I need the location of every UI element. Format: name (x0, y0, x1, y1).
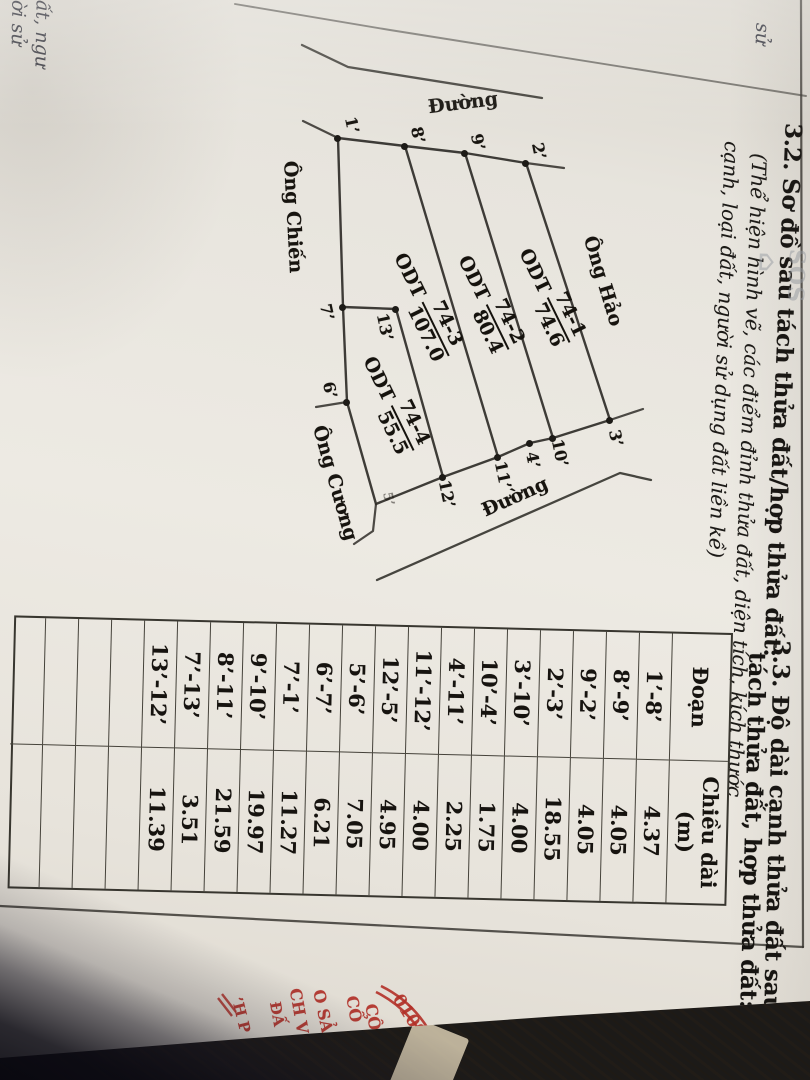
length-cell: 3.51 (172, 748, 207, 891)
vertex-label: 3’ (605, 428, 627, 448)
segment-cell: 8’-9’ (604, 632, 639, 760)
stamp-arc-lines (0, 0, 810, 1080)
vertex-label: 1’ (341, 115, 363, 135)
cadastral-diagram-lines (0, 0, 810, 1080)
length-cell: 11.39 (139, 748, 174, 891)
boundary-extension-tick (526, 163, 564, 168)
length-cell: 4.95 (369, 753, 404, 896)
handwriting-fragment-line2: ời sử (7, 0, 30, 46)
handwriting-fragment-line1: ất, ngư (30, 0, 53, 68)
vertex-dot (335, 135, 342, 142)
boundary-extension-tick (303, 121, 338, 138)
vertex-label: 10’ (548, 437, 572, 468)
segment-cell: 9’-10’ (241, 623, 276, 751)
parcel-id-area-fraction: 74-280.4 (467, 295, 528, 359)
vertex-dot (523, 160, 530, 167)
length-cell: 19.97 (238, 750, 273, 893)
parcel-id-area-fraction: 74-174.6 (528, 288, 589, 352)
stamp-text-fragment: O SẢ (309, 988, 337, 1034)
land-use-code: ODT (515, 245, 555, 297)
parcel-label: ODT74-455.5 (349, 348, 433, 460)
segment-cell: 3’-10’ (505, 630, 540, 758)
segment-cell: 6’-7’ (307, 625, 342, 753)
segment-cell: 9’-2’ (571, 631, 606, 759)
vertex-label: 2’ (528, 141, 550, 161)
length-cell: 2.25 (435, 755, 470, 898)
length-cell: 21.59 (205, 749, 240, 892)
parcel-id-area-fraction: 74-3107.0 (403, 293, 469, 366)
road-edge-line (302, 45, 542, 98)
length-cell: 6.21 (304, 752, 339, 895)
vertex-label: 7’ (316, 302, 338, 322)
watermark-house-icon: ⌂ (753, 251, 783, 272)
vertex-label: 4’ (522, 450, 544, 470)
column-header-length: Chiều dài (m) (666, 760, 727, 903)
parcel-division-line (343, 307, 396, 309)
segment-cell: 8’-11’ (208, 622, 243, 750)
column-header-segment: Đoạn (670, 634, 731, 762)
adjacent-owner-label: Ông Hảo (579, 233, 627, 329)
length-cell: 1.75 (468, 756, 503, 899)
handwriting-fragment-top: sử (751, 23, 774, 46)
vertex-dot (607, 417, 614, 424)
length-cell: 4.00 (501, 756, 536, 899)
boundary-extension-tick (316, 402, 347, 407)
land-use-code: ODT (389, 250, 429, 302)
segment-cell: 13’-12’ (142, 621, 177, 749)
segment-cell: 4’-11’ (439, 628, 474, 756)
land-use-code: ODT (359, 353, 399, 405)
length-cell: 4.00 (402, 754, 437, 897)
land-use-code: ODT (454, 252, 494, 304)
vertex-dot (344, 399, 351, 406)
length-cell: 18.55 (534, 757, 569, 900)
segment-cell: 11’-12’ (406, 627, 441, 755)
stamp-text-fragment: ĐẤ (266, 1000, 288, 1027)
road-label: Đường (427, 88, 499, 118)
vertex-dot (393, 306, 400, 313)
watermark-text: SOS (782, 249, 810, 304)
segment-cell: 12’-5’ (373, 626, 408, 754)
length-cell: 4.37 (633, 760, 668, 903)
adjacent-owner-label: Ông Chiến (279, 160, 307, 273)
parcel-id-area-fraction: 74-455.5 (372, 396, 433, 460)
boundary-extension-tick (610, 409, 643, 420)
segment-cell: 2’-3’ (538, 630, 573, 758)
rotated-page: 3.2. Sơ đồ sau tách thửa đất/hợp thửa đấ… (0, 0, 810, 1080)
length-cell: 7.05 (336, 752, 371, 895)
stamp-text-fragment: CỔ (342, 994, 365, 1024)
segment-cell: 1’-8’ (637, 633, 672, 761)
segment-cell: 10’-4’ (472, 629, 507, 757)
segment-cell: 5’-6’ (340, 625, 375, 753)
stamp-text-fragment: CH V (286, 987, 313, 1035)
paper-sheet: 3.2. Sơ đồ sau tách thửa đất/hợp thửa đấ… (0, 0, 810, 1080)
table-body: 1’-8’4.378’-9’4.059’-2’4.052’-3’18.553’-… (7, 617, 673, 902)
road-label: Đường (478, 473, 551, 522)
vertex-label: 6’ (319, 380, 341, 400)
vertex-dot (495, 454, 502, 461)
vertex-label: 9’ (467, 132, 489, 152)
vertex-dot (462, 150, 469, 157)
segment-cell: 7’-13’ (175, 621, 210, 749)
segment-cell: 7’-1’ (274, 624, 309, 752)
vertex-label: 12’ (435, 478, 459, 509)
document-photo: 3.2. Sơ đồ sau tách thửa đất/hợp thửa đấ… (0, 0, 810, 1080)
length-cell: 11.27 (271, 751, 306, 894)
cropped-form-line (235, 4, 806, 96)
vertex-dot (402, 143, 409, 150)
adjacent-owner-label: Ông Cương (308, 423, 362, 543)
form-frame-line (0, 906, 803, 947)
vertex-label: 8’ (407, 125, 429, 145)
vertex-dot (527, 440, 534, 447)
table-header-row: Đoạn Chiều dài (m) (666, 634, 731, 904)
vertex-label: 13’ (373, 311, 397, 342)
stamp-text-fragment: ’H P (228, 995, 254, 1034)
edge-length-table: Đoạn Chiều dài (m) 1’-8’4.378’-9’4.059’-… (8, 615, 733, 905)
length-cell: 4.05 (600, 759, 635, 902)
vertex-dot (340, 304, 347, 311)
vertex-label: 5’ (379, 491, 396, 507)
length-cell: 4.05 (567, 758, 602, 901)
